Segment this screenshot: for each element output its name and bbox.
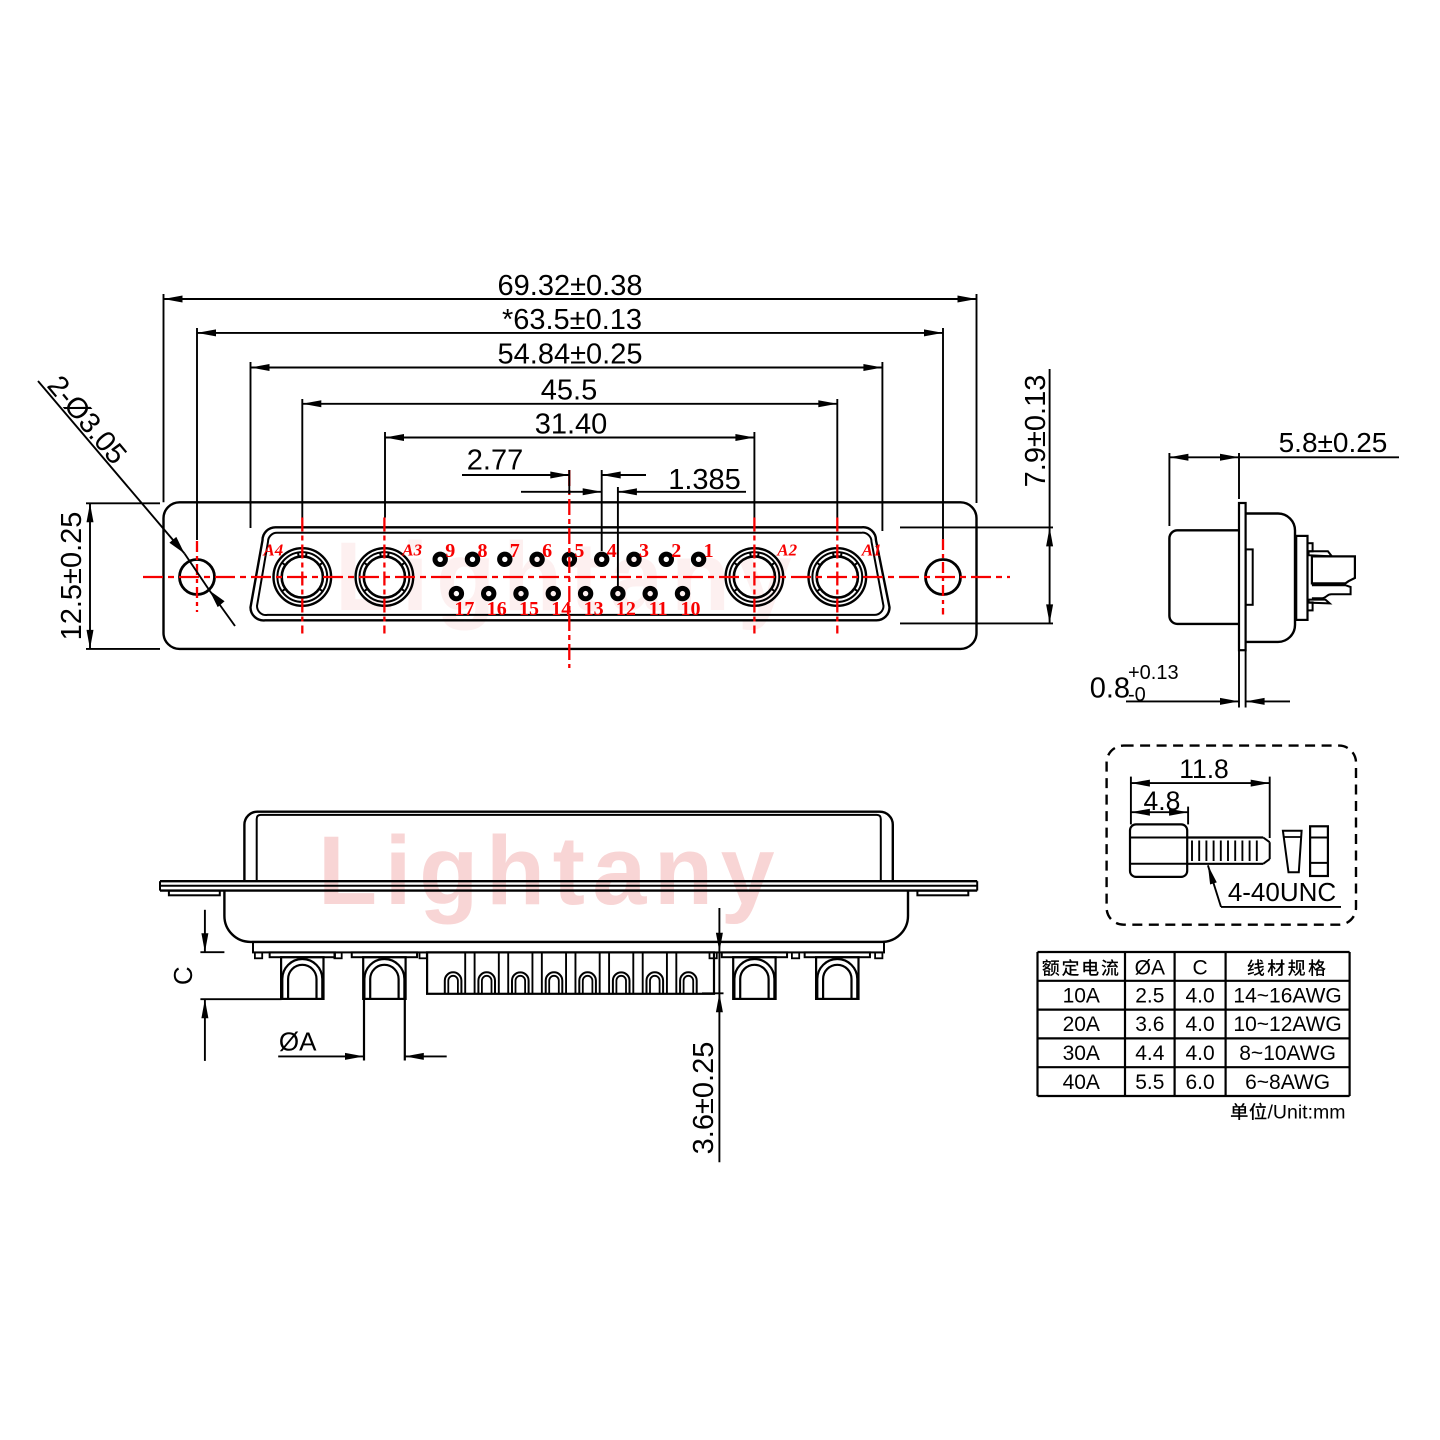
svg-text:*63.5±0.13: *63.5±0.13: [502, 304, 642, 336]
svg-text:5.8±0.25: 5.8±0.25: [1279, 427, 1388, 458]
svg-text:0.8: 0.8: [1090, 673, 1130, 705]
svg-text:C: C: [1193, 957, 1208, 980]
svg-text:54.84±0.25: 54.84±0.25: [498, 339, 643, 371]
svg-text:A4: A4: [262, 541, 283, 560]
svg-text:45.5: 45.5: [541, 375, 597, 407]
svg-text:14~16AWG: 14~16AWG: [1233, 984, 1341, 1007]
svg-text:6.0: 6.0: [1185, 1071, 1214, 1094]
svg-text:16: 16: [487, 598, 507, 620]
svg-text:5.5: 5.5: [1135, 1071, 1164, 1094]
svg-text:C: C: [168, 966, 198, 985]
svg-text:Lightany: Lightany: [318, 816, 782, 925]
svg-text:/Unit:mm: /Unit:mm: [1268, 1102, 1346, 1124]
svg-text:A1: A1: [861, 541, 882, 560]
svg-text:12: 12: [616, 598, 636, 620]
svg-text:7.9±0.13: 7.9±0.13: [1020, 375, 1052, 488]
svg-text:10: 10: [681, 598, 701, 620]
svg-text:11: 11: [649, 598, 668, 620]
svg-text:ØA: ØA: [1135, 957, 1165, 980]
svg-text:2.77: 2.77: [467, 445, 523, 477]
svg-text:40A: 40A: [1063, 1071, 1100, 1094]
svg-text:30A: 30A: [1063, 1042, 1100, 1065]
svg-text:69.32±0.38: 69.32±0.38: [498, 270, 643, 302]
svg-text:-0: -0: [1128, 684, 1146, 706]
svg-text:2.5: 2.5: [1135, 984, 1164, 1007]
svg-text:11.8: 11.8: [1179, 754, 1229, 784]
svg-text:13: 13: [584, 598, 604, 620]
svg-text:3.6: 3.6: [1135, 1013, 1164, 1036]
svg-text:1: 1: [704, 540, 714, 562]
svg-text:1.385: 1.385: [668, 464, 741, 496]
svg-text:3.6±0.25: 3.6±0.25: [688, 1042, 720, 1155]
svg-text:5: 5: [574, 540, 584, 562]
svg-text:31.40: 31.40: [535, 409, 608, 441]
svg-text:4: 4: [607, 540, 617, 562]
svg-text:8~10AWG: 8~10AWG: [1239, 1042, 1336, 1065]
svg-text:2: 2: [671, 540, 681, 562]
svg-text:15: 15: [519, 598, 539, 620]
svg-text:4.0: 4.0: [1185, 984, 1214, 1007]
svg-text:17: 17: [454, 598, 474, 620]
svg-text:8: 8: [478, 540, 488, 562]
svg-text:6~8AWG: 6~8AWG: [1245, 1071, 1330, 1094]
svg-text:10~12AWG: 10~12AWG: [1233, 1013, 1341, 1036]
svg-text:3: 3: [639, 540, 649, 562]
svg-text:4-40UNC: 4-40UNC: [1228, 877, 1336, 907]
svg-text:A2: A2: [776, 541, 797, 560]
svg-text:+0.13: +0.13: [1128, 662, 1179, 684]
svg-text:2-Ø3.05: 2-Ø3.05: [41, 370, 133, 471]
svg-text:4.0: 4.0: [1185, 1042, 1214, 1065]
svg-text:A3: A3: [401, 541, 422, 560]
svg-text:7: 7: [510, 540, 520, 562]
svg-text:10A: 10A: [1063, 984, 1100, 1007]
svg-text:12.5±0.25: 12.5±0.25: [56, 512, 88, 641]
svg-text:4.0: 4.0: [1185, 1013, 1214, 1036]
svg-text:6: 6: [542, 540, 552, 562]
svg-text:9: 9: [445, 540, 455, 562]
svg-text:20A: 20A: [1063, 1013, 1100, 1036]
svg-text:4.4: 4.4: [1135, 1042, 1165, 1065]
svg-text:ØA: ØA: [279, 1027, 317, 1057]
